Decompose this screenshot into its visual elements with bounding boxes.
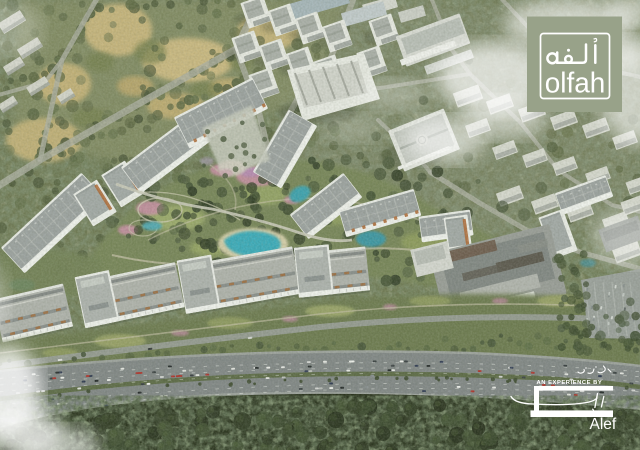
svg-text:olfah: olfah (545, 67, 606, 99)
svg-text:Alef: Alef (590, 416, 617, 433)
svg-text:AN EXPERIENCE BY: AN EXPERIENCE BY (537, 380, 603, 386)
